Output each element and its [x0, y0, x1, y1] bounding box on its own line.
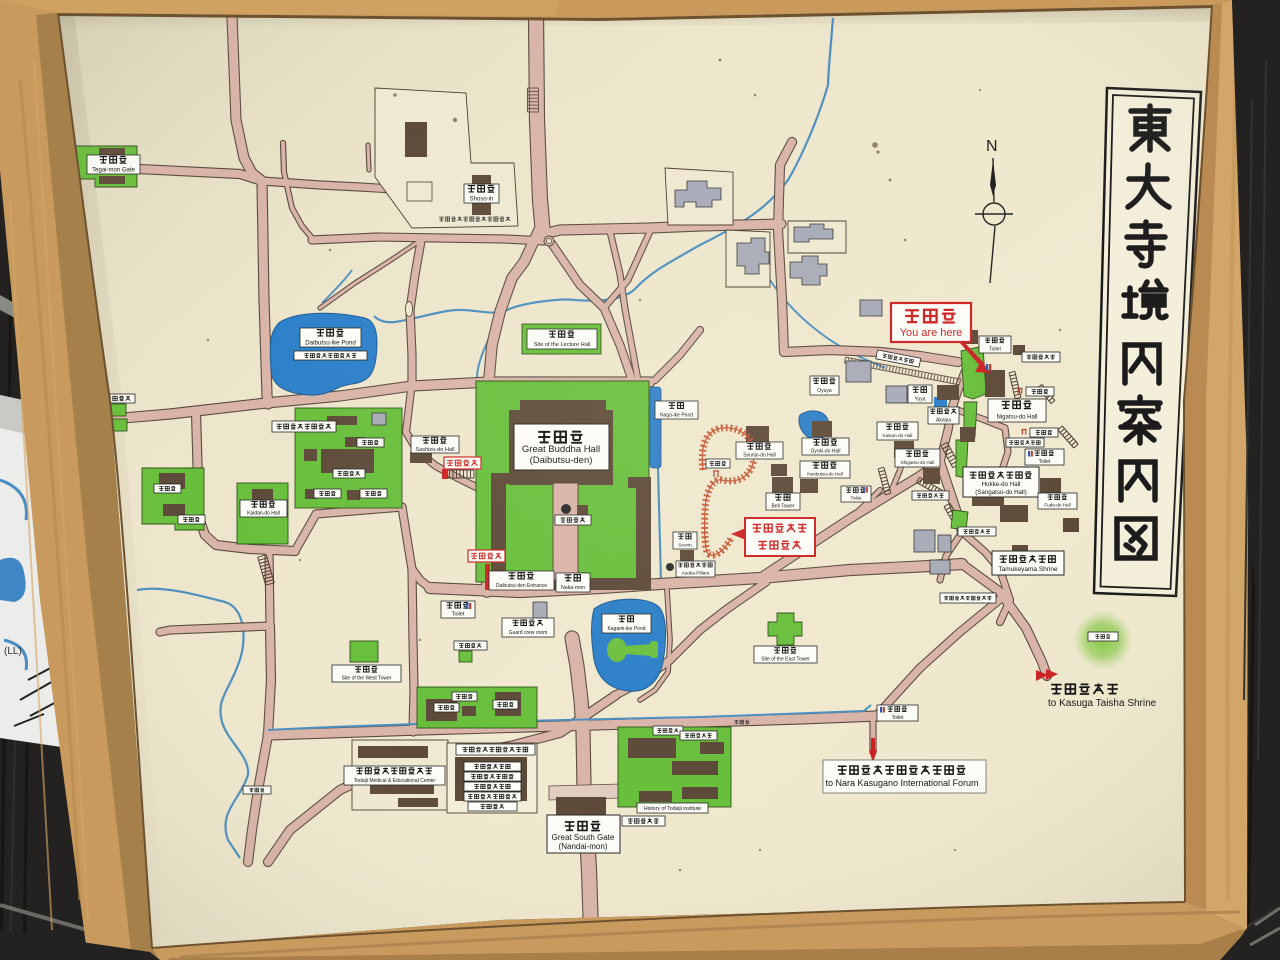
svg-text:(LL): (LL) — [4, 646, 22, 657]
